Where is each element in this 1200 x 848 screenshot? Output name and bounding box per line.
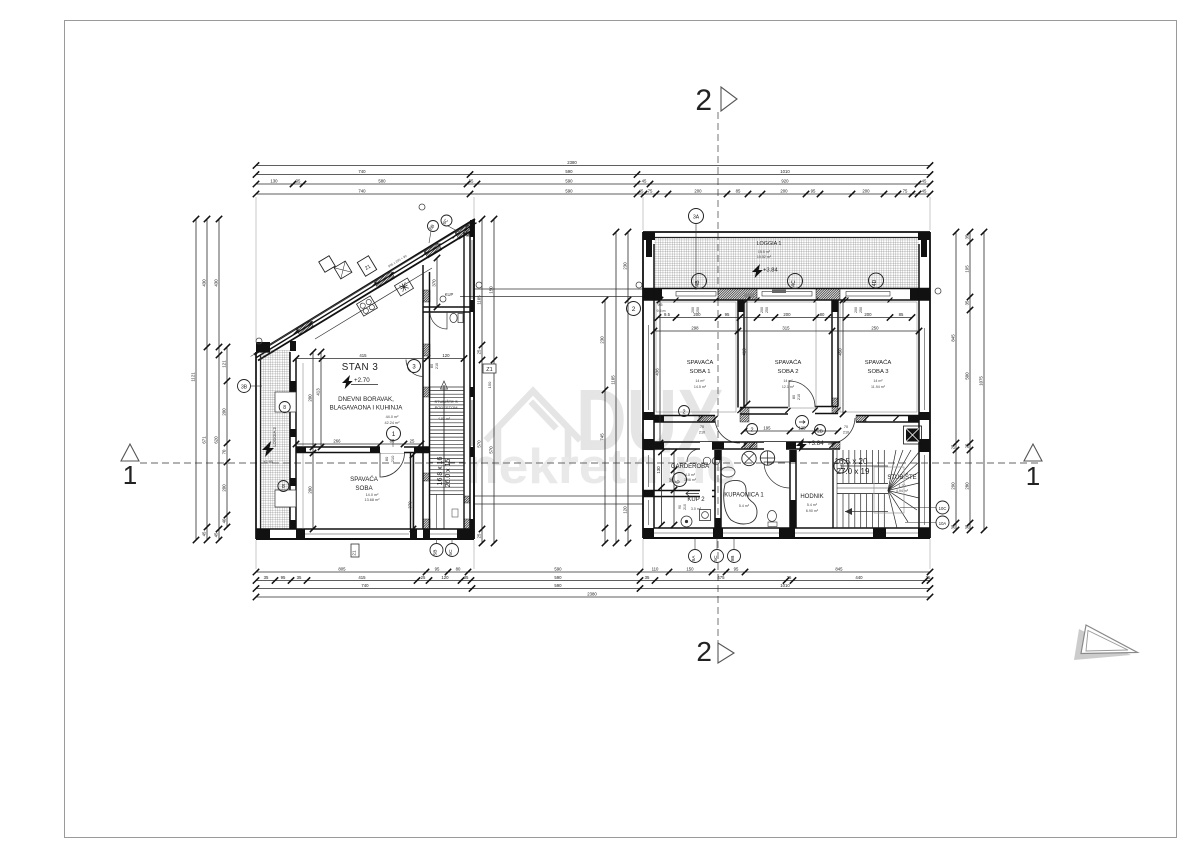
svg-text:1010: 1010	[780, 583, 790, 588]
svg-text:200: 200	[221, 408, 226, 416]
svg-text:1121: 1121	[190, 372, 195, 382]
svg-text:80: 80	[384, 456, 389, 461]
svg-text:740: 740	[361, 583, 369, 588]
svg-text:2: 2	[682, 410, 685, 416]
svg-text:2: 2	[696, 636, 712, 667]
svg-text:3A: 3A	[693, 215, 700, 221]
svg-text:45: 45	[213, 532, 218, 537]
svg-text:1.20: 1.20	[899, 484, 906, 488]
svg-text:500: 500	[964, 372, 969, 380]
svg-text:15.52 m²: 15.52 m²	[757, 255, 772, 259]
svg-text:80: 80	[430, 364, 434, 368]
svg-text:413: 413	[741, 348, 746, 356]
svg-text:95: 95	[734, 566, 739, 571]
svg-text:120: 120	[441, 575, 449, 580]
svg-text:12.1 m²: 12.1 m²	[782, 385, 795, 389]
svg-text:250: 250	[696, 307, 700, 313]
svg-text:KUP: KUP	[445, 292, 454, 297]
svg-text:8: 8	[283, 405, 286, 411]
svg-text:35: 35	[645, 575, 650, 580]
svg-text:5.4 m²: 5.4 m²	[807, 503, 818, 507]
svg-text:5C: 5C	[448, 549, 454, 556]
svg-text:2: 2	[632, 306, 636, 313]
svg-text:95: 95	[725, 312, 730, 317]
svg-text:1: 1	[392, 431, 396, 438]
svg-text:70: 70	[700, 425, 704, 429]
svg-text:95: 95	[281, 575, 286, 580]
svg-text:200: 200	[760, 307, 764, 313]
svg-text:+2.70: +2.70	[354, 377, 370, 384]
svg-text:130: 130	[656, 466, 661, 474]
svg-text:14 m²: 14 m²	[783, 379, 793, 383]
svg-text:35: 35	[950, 524, 955, 529]
svg-text:250: 250	[859, 307, 863, 313]
svg-text:25: 25	[964, 443, 969, 448]
svg-text:1: 1	[123, 460, 137, 490]
svg-text:290: 290	[950, 482, 955, 490]
svg-text:570: 570	[476, 440, 481, 448]
svg-text:80: 80	[668, 477, 673, 482]
svg-text:3.0 m²: 3.0 m²	[691, 507, 702, 511]
svg-text:+2.65: +2.65	[263, 460, 273, 464]
svg-text:45: 45	[639, 188, 644, 193]
svg-text:570: 570	[488, 446, 493, 454]
svg-text:430: 430	[201, 279, 206, 287]
svg-text:SOBA 1: SOBA 1	[690, 369, 711, 375]
svg-text:Z1: Z1	[486, 367, 492, 373]
svg-text:25: 25	[787, 575, 792, 580]
svg-text:210: 210	[435, 363, 439, 369]
svg-text:40: 40	[221, 518, 226, 523]
svg-text:80: 80	[456, 566, 461, 571]
svg-text:200: 200	[307, 486, 312, 494]
svg-text:210: 210	[797, 394, 801, 400]
svg-text:6.90 m²: 6.90 m²	[806, 509, 819, 513]
svg-text:150: 150	[488, 286, 493, 294]
svg-text:16.5 x 20: 16.5 x 20	[835, 457, 868, 466]
svg-text:14.5 m²: 14.5 m²	[694, 385, 707, 389]
svg-text:298: 298	[691, 325, 699, 330]
svg-text:35: 35	[464, 575, 469, 580]
svg-text:15.5 m²: 15.5 m²	[758, 250, 771, 254]
svg-text:740: 740	[358, 188, 366, 193]
svg-text:35: 35	[964, 524, 969, 529]
svg-text:25: 25	[421, 575, 426, 580]
svg-text:315: 315	[782, 325, 790, 330]
svg-text:230: 230	[599, 336, 604, 344]
svg-text:2B: 2B	[817, 429, 823, 434]
svg-text:80: 80	[390, 438, 395, 443]
svg-text:SPAVAĆA: SPAVAĆA	[775, 359, 802, 366]
svg-text:10C: 10C	[939, 506, 947, 511]
svg-text:9A: 9A	[691, 555, 697, 562]
svg-text:121: 121	[221, 360, 226, 368]
svg-text:14 m²: 14 m²	[873, 379, 883, 383]
svg-text:35: 35	[964, 234, 969, 239]
svg-text:590: 590	[565, 169, 573, 174]
svg-text:1075: 1075	[978, 376, 983, 386]
svg-text:130: 130	[270, 178, 278, 183]
svg-text:4.94 m²: 4.94 m²	[896, 489, 909, 493]
svg-text:27.0 x 19: 27.0 x 19	[837, 467, 870, 476]
svg-text:920: 920	[781, 178, 789, 183]
svg-text:230: 230	[622, 262, 627, 270]
svg-text:26.0 x 15: 26.0 x 15	[445, 458, 452, 487]
svg-text:13.68 m²: 13.68 m²	[365, 498, 381, 502]
svg-text:845: 845	[835, 566, 843, 571]
svg-text:5C: 5C	[713, 555, 719, 562]
svg-text:70: 70	[844, 425, 848, 429]
svg-text:35: 35	[297, 575, 302, 580]
svg-text:25: 25	[476, 349, 481, 354]
svg-text:200: 200	[780, 188, 788, 193]
svg-text:LOGGIA 3: LOGGIA 3	[272, 427, 277, 447]
svg-text:450: 450	[837, 348, 842, 356]
svg-text:SOBA 2: SOBA 2	[778, 369, 799, 375]
svg-text:SOBA: SOBA	[355, 485, 373, 492]
svg-text:SPAVAĆA: SPAVAĆA	[350, 476, 379, 483]
svg-text:4D: 4D	[872, 279, 878, 286]
svg-text:90: 90	[678, 505, 682, 509]
svg-text:580: 580	[378, 178, 386, 183]
svg-text:250: 250	[871, 325, 879, 330]
svg-text:11.94 m²: 11.94 m²	[871, 385, 886, 389]
svg-text:35: 35	[926, 575, 931, 580]
svg-text:9.5: 9.5	[664, 312, 671, 317]
svg-text:14 m²: 14 m²	[695, 379, 705, 383]
svg-text:370: 370	[431, 279, 436, 287]
svg-text:671: 671	[201, 436, 206, 444]
svg-text:280: 280	[964, 482, 969, 490]
svg-text:740: 740	[358, 169, 366, 174]
svg-text:590: 590	[554, 566, 562, 571]
svg-text:HODNIK: HODNIK	[800, 494, 823, 500]
svg-text:1: 1	[1026, 461, 1040, 491]
svg-text:620: 620	[213, 436, 218, 444]
svg-text:4.93 m²: 4.93 m²	[438, 417, 451, 421]
svg-text:150: 150	[487, 381, 492, 388]
svg-text:PODESTOM: PODESTOM	[435, 405, 458, 410]
svg-text:DNEVNI BORAVAK,: DNEVNI BORAVAK,	[338, 396, 394, 403]
svg-text:4.0 m²: 4.0 m²	[685, 473, 696, 477]
svg-text:475: 475	[717, 575, 725, 580]
svg-text:2: 2	[750, 428, 753, 434]
svg-text:415: 415	[359, 353, 367, 358]
svg-text:KUPAONICA 1: KUPAONICA 1	[724, 493, 764, 499]
svg-text:120: 120	[622, 506, 627, 514]
svg-text:590: 590	[565, 188, 573, 193]
svg-text:845: 845	[950, 334, 955, 342]
svg-text:2380: 2380	[587, 591, 597, 596]
svg-text:430: 430	[213, 279, 218, 287]
svg-text:5.4 m²: 5.4 m²	[739, 504, 750, 508]
svg-text:1010: 1010	[780, 169, 790, 174]
svg-text:210: 210	[843, 431, 849, 435]
svg-text:+3.84: +3.84	[763, 268, 778, 274]
svg-text:150: 150	[686, 566, 694, 571]
svg-text:STAN 3: STAN 3	[342, 362, 379, 373]
svg-text:415: 415	[358, 575, 366, 580]
svg-text:200: 200	[854, 307, 858, 313]
svg-text:250: 250	[765, 307, 769, 313]
svg-text:45: 45	[201, 531, 206, 536]
svg-text:75: 75	[903, 188, 908, 193]
svg-text:2: 2	[695, 84, 712, 117]
svg-text:1105: 1105	[610, 375, 615, 385]
svg-text:210: 210	[683, 504, 687, 510]
svg-text:35: 35	[469, 178, 474, 183]
svg-text:200: 200	[864, 312, 872, 317]
svg-text:195: 195	[763, 425, 771, 430]
svg-text:805: 805	[338, 566, 346, 571]
svg-text:25: 25	[950, 444, 955, 449]
svg-text:35: 35	[264, 575, 269, 580]
svg-text:4C: 4C	[791, 280, 797, 287]
svg-text:3B: 3B	[241, 385, 248, 391]
svg-text:80: 80	[820, 312, 825, 317]
svg-text:436: 436	[654, 368, 659, 376]
svg-text:85: 85	[736, 188, 741, 193]
svg-text:BLAGAVAONA I KUHINJA: BLAGAVAONA I KUHINJA	[330, 405, 404, 412]
svg-text:200: 200	[307, 394, 312, 402]
svg-text:95: 95	[811, 188, 816, 193]
svg-text:+3.84: +3.84	[808, 440, 824, 447]
svg-text:590: 590	[554, 583, 562, 588]
svg-text:95: 95	[435, 566, 440, 571]
svg-text:590: 590	[565, 178, 573, 183]
svg-text:25: 25	[476, 533, 481, 538]
svg-text:590: 590	[554, 575, 562, 580]
svg-text:370: 370	[407, 501, 412, 509]
svg-text:21: 21	[351, 550, 356, 556]
svg-text:210: 210	[390, 455, 395, 462]
svg-text:125: 125	[798, 425, 806, 430]
svg-text:14.0 m²: 14.0 m²	[366, 493, 380, 497]
svg-text:200: 200	[862, 188, 870, 193]
svg-text:440: 440	[855, 575, 863, 580]
svg-text:9B: 9B	[730, 556, 736, 562]
svg-text:35: 35	[296, 178, 301, 183]
svg-text:8: 8	[282, 484, 285, 490]
svg-text:120: 120	[442, 353, 450, 358]
svg-text:745: 745	[599, 433, 604, 441]
svg-text:5B: 5B	[433, 550, 439, 556]
svg-text:SOBA 3: SOBA 3	[868, 369, 890, 375]
svg-text:SPAVAĆA: SPAVAĆA	[687, 359, 714, 366]
svg-text:44.0 m²: 44.0 m²	[386, 415, 400, 419]
svg-text:35: 35	[964, 300, 969, 305]
svg-text:42.24 m²: 42.24 m²	[385, 421, 401, 425]
svg-text:200: 200	[221, 484, 226, 492]
svg-text:10A: 10A	[939, 521, 947, 526]
svg-text:195: 195	[964, 265, 969, 273]
svg-text:80: 80	[792, 395, 796, 399]
svg-text:200: 200	[783, 312, 791, 317]
svg-text:413: 413	[315, 388, 320, 396]
svg-text:75: 75	[648, 188, 653, 193]
svg-text:25: 25	[410, 438, 415, 443]
svg-text:200: 200	[694, 188, 702, 193]
svg-text:110: 110	[652, 566, 659, 571]
svg-text:45: 45	[922, 188, 927, 193]
svg-text:STUBIŠTE S: STUBIŠTE S	[434, 399, 458, 404]
svg-text:210: 210	[699, 431, 705, 435]
svg-text:266: 266	[333, 438, 341, 443]
svg-text:STUBIŠTE: STUBIŠTE	[887, 474, 916, 481]
svg-text:KUP 2: KUP 2	[687, 497, 705, 503]
svg-text:16.8 x 16: 16.8 x 16	[437, 456, 444, 485]
svg-text:70: 70	[221, 449, 226, 454]
svg-text:45: 45	[922, 178, 927, 183]
svg-text:SPAVAĆA: SPAVAĆA	[865, 359, 892, 366]
svg-text:2380: 2380	[567, 160, 577, 165]
svg-text:200: 200	[691, 307, 695, 313]
svg-text:LOGGIA 1: LOGGIA 1	[757, 241, 782, 247]
svg-text:85: 85	[899, 312, 904, 317]
svg-text:45: 45	[642, 178, 647, 183]
